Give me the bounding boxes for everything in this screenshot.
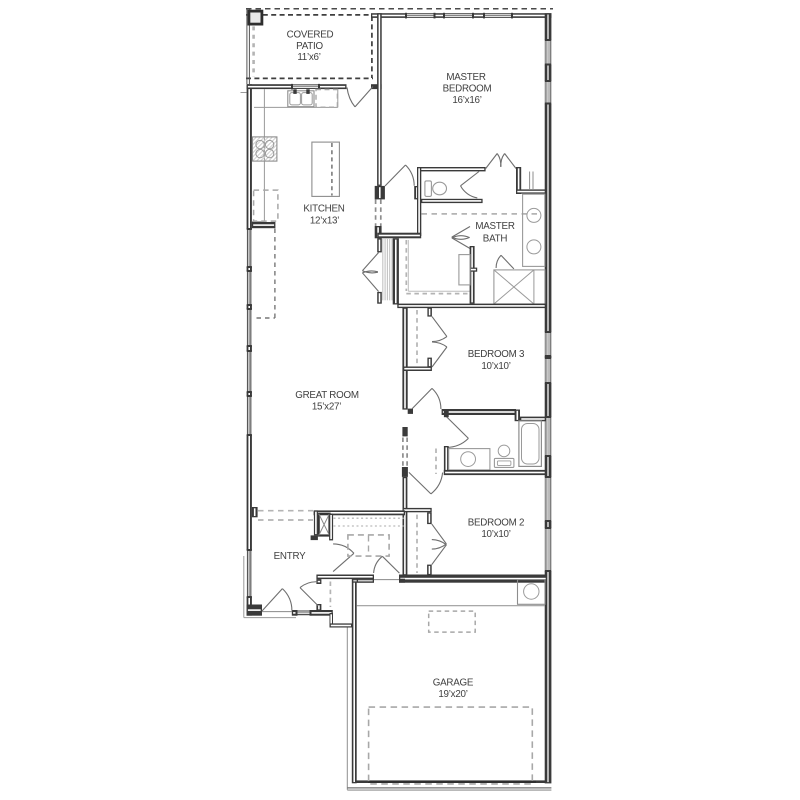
svg-text:MASTER: MASTER: [446, 72, 485, 83]
svg-text:12’x13’: 12’x13’: [310, 215, 339, 226]
svg-text:GARAGE: GARAGE: [433, 678, 474, 689]
svg-text:PATIO: PATIO: [296, 41, 323, 52]
svg-text:11’x6’: 11’x6’: [297, 52, 320, 63]
svg-text:COVERED: COVERED: [287, 30, 334, 41]
svg-text:10’x10’: 10’x10’: [481, 361, 510, 372]
svg-text:BEDROOM: BEDROOM: [443, 84, 492, 95]
svg-text:MASTER: MASTER: [475, 221, 514, 232]
svg-text:KITCHEN: KITCHEN: [303, 204, 344, 215]
svg-text:10’x10’: 10’x10’: [481, 529, 510, 540]
svg-text:BEDROOM 2: BEDROOM 2: [468, 517, 525, 528]
svg-text:BATH: BATH: [483, 234, 508, 245]
svg-text:19’x20’: 19’x20’: [438, 689, 467, 700]
svg-text:ENTRY: ENTRY: [274, 551, 306, 562]
svg-text:BEDROOM 3: BEDROOM 3: [468, 349, 525, 360]
svg-text:16’x16’: 16’x16’: [452, 95, 481, 106]
svg-text:GREAT ROOM: GREAT ROOM: [295, 390, 359, 401]
svg-text:15’x27’: 15’x27’: [312, 402, 341, 413]
